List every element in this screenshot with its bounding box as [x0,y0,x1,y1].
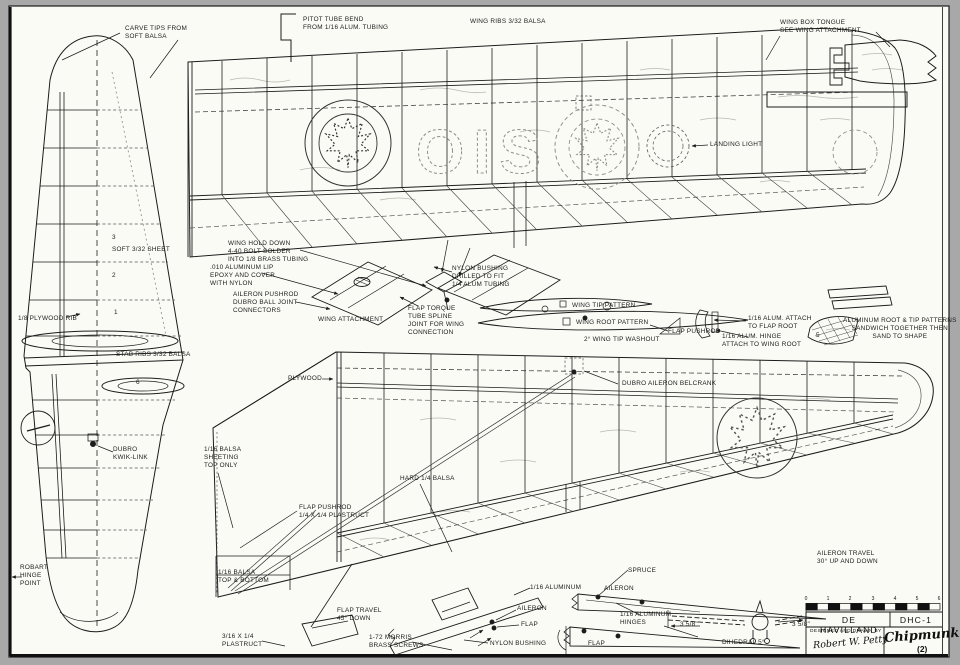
scale-number-6: 6 [935,596,943,602]
sheet-number: (2) [917,644,927,654]
plan-sheet-page: { "page": {"background": "#a8a8a8", "pap… [0,0,960,665]
scale-number-2: 2 [846,596,854,602]
scale-number-1: 1 [824,596,832,602]
registration-letters: OIS [416,118,550,187]
scale-number-0: 0 [802,596,810,602]
title-designed-by-label: DESIGNED AND DRAWN BY [810,629,882,634]
plan-drawing: OIS [0,0,960,665]
scale-number-3: 3 [869,596,877,602]
scale-number-4: 4 [891,596,899,602]
scale-number-5: 5 [913,596,921,602]
title-model: DHC-1 [893,615,939,625]
